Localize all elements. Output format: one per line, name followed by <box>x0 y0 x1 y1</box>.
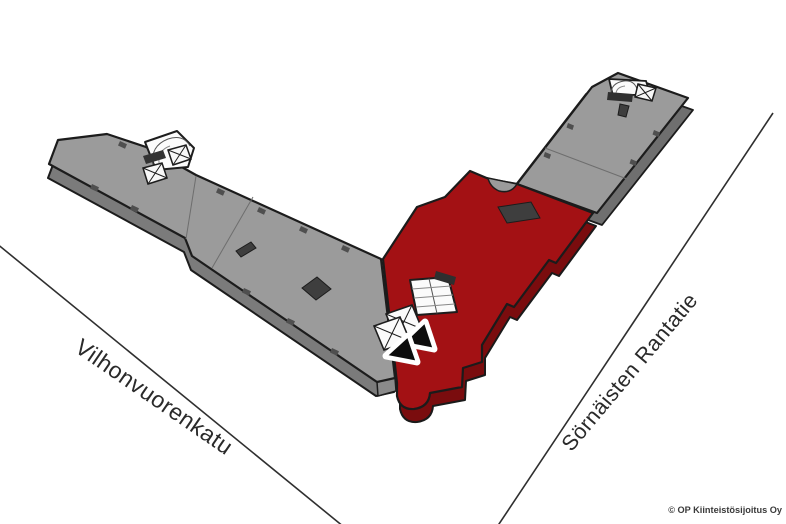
street-label-right: Sörnäisten Rantatie <box>557 288 703 455</box>
site-plan-canvas: Vilhonvuorenkatu Sörnäisten Rantatie <box>0 0 786 524</box>
floorplan-page: Vilhonvuorenkatu Sörnäisten Rantatie <box>0 0 786 524</box>
copyright-text: © OP Kiinteistösijoitus Oy <box>668 505 783 515</box>
street-label-left: Vilhonvuorenkatu <box>71 334 238 460</box>
